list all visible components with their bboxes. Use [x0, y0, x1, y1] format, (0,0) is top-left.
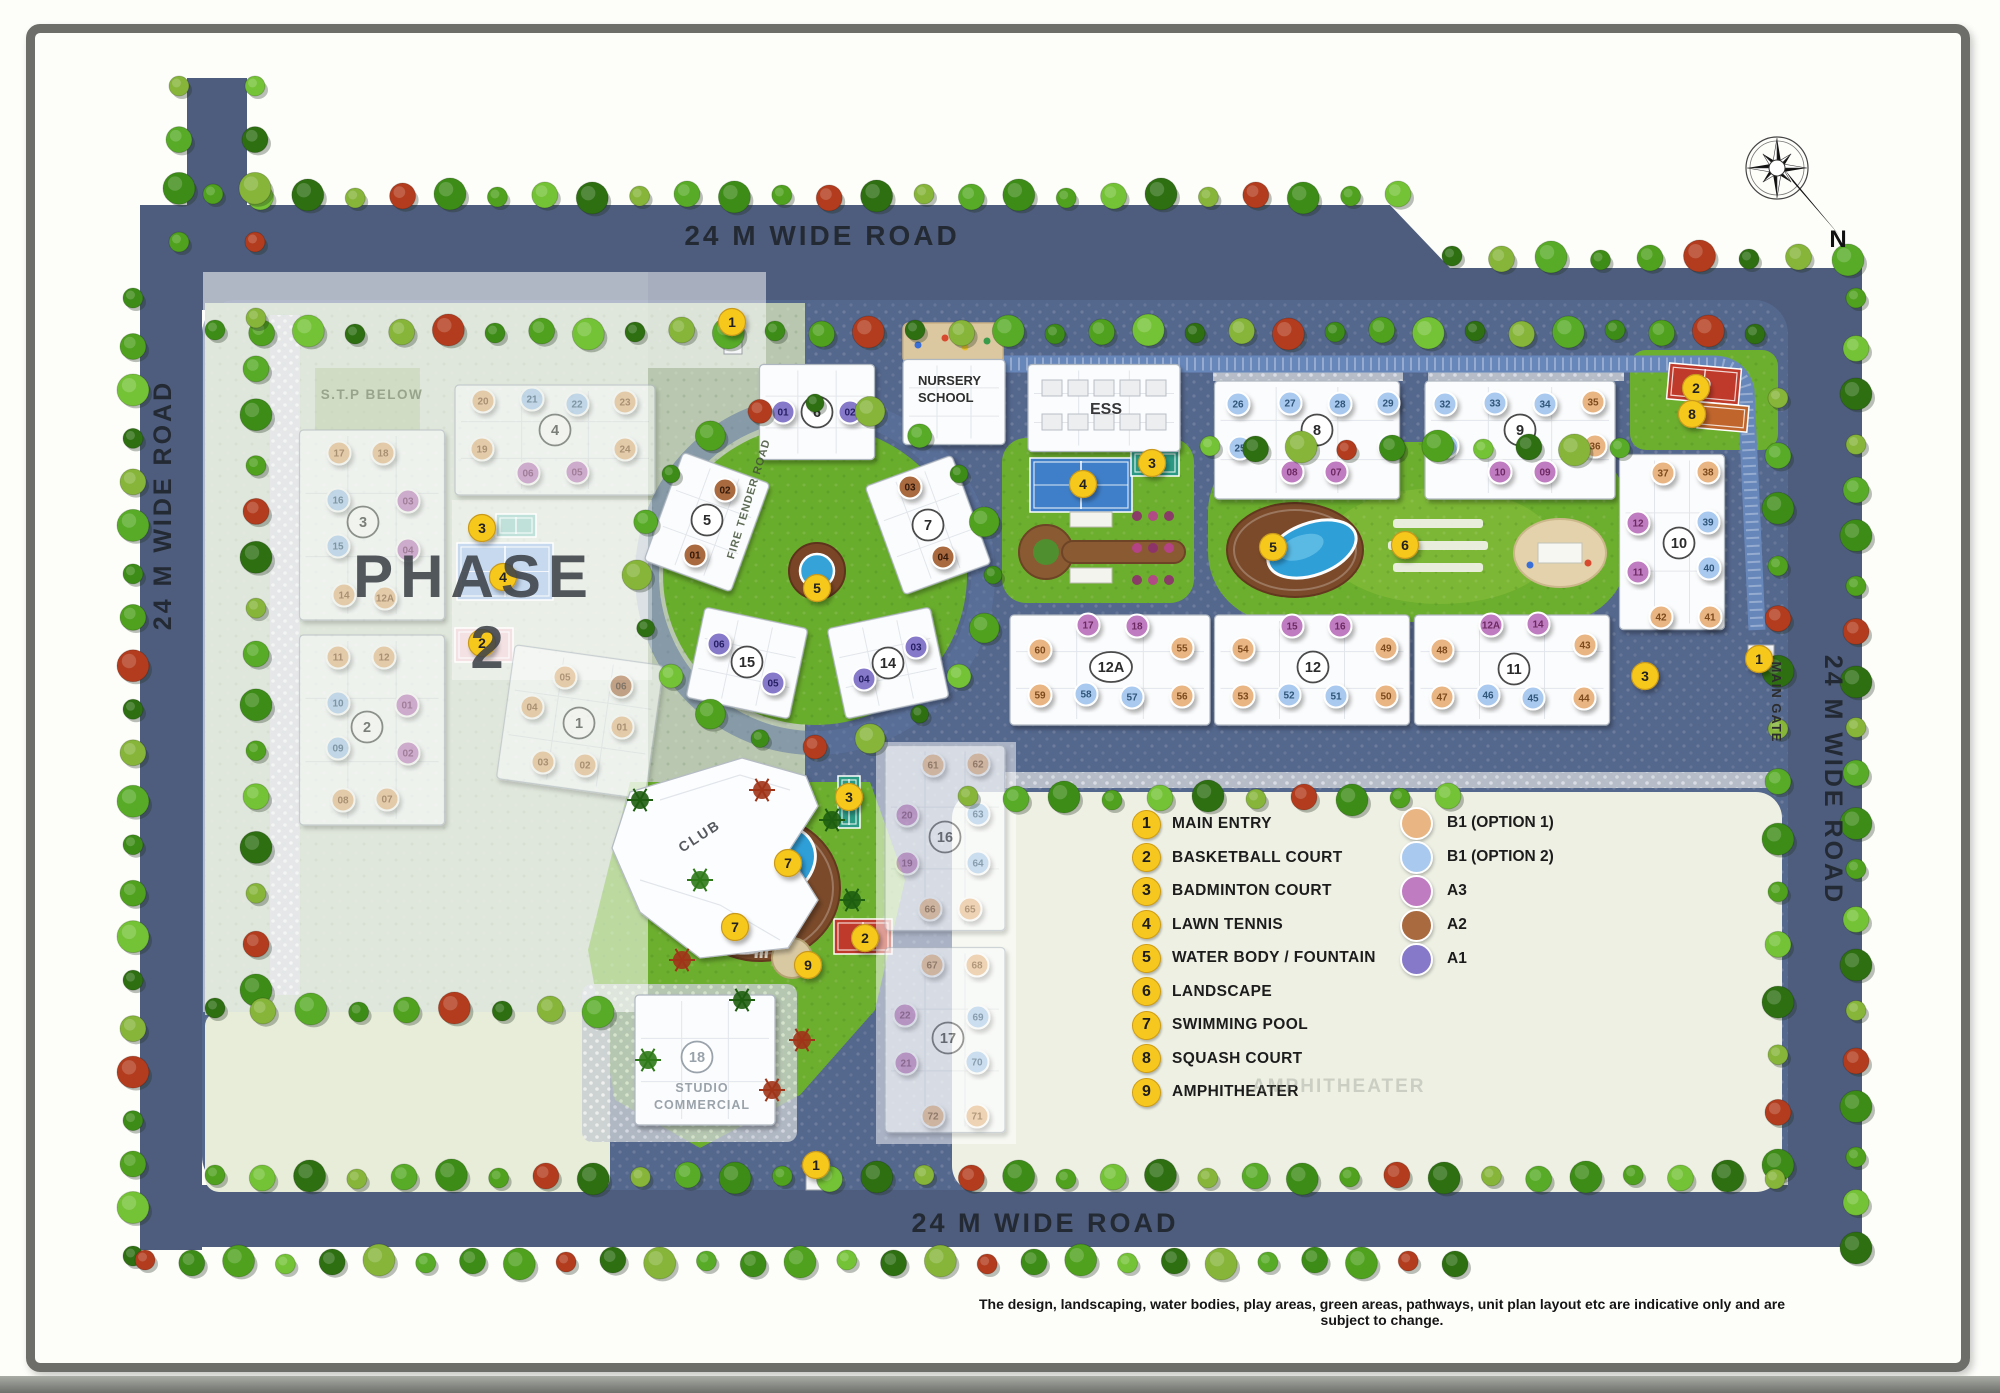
text: 21 [900, 1059, 912, 1070]
circle [1439, 786, 1451, 798]
circle [820, 188, 832, 200]
text: 26 [1232, 400, 1244, 411]
unit-04: 04 [853, 668, 876, 691]
text: 7 [784, 855, 792, 871]
rect [1068, 414, 1088, 430]
circle [206, 187, 215, 196]
building-number-17: 17 [933, 1023, 964, 1054]
circle [245, 693, 259, 707]
unit-02: 02 [574, 754, 597, 777]
circle [1007, 789, 1019, 801]
tree-icon [223, 1245, 258, 1279]
map-marker-3: 3 [469, 515, 496, 542]
circle [1389, 184, 1401, 196]
circle [1401, 1254, 1410, 1263]
rect [1120, 380, 1140, 396]
unit-07: 07 [376, 788, 399, 811]
nursery-school-label-line2: SCHOOL [918, 390, 974, 405]
unit-06: 06 [517, 462, 540, 485]
circle [172, 235, 181, 244]
circle [1767, 827, 1781, 841]
tree-icon [644, 1247, 679, 1281]
circle [124, 743, 136, 755]
circle [587, 1000, 601, 1014]
text: 1 [575, 716, 583, 732]
legend-item-1: 1MAIN ENTRY [1132, 810, 1272, 838]
unit-65: 65 [959, 898, 982, 921]
circle [1626, 1168, 1635, 1177]
circle [245, 403, 259, 417]
unit-15: 15 [327, 535, 350, 558]
circle [679, 1165, 691, 1177]
text: 16 [332, 496, 344, 507]
tree-icon [914, 184, 937, 207]
tree-icon [135, 1250, 158, 1273]
text: 33 [1489, 399, 1501, 410]
tree-icon [1065, 1244, 1100, 1278]
legend-number-badge: 7 [1132, 1011, 1161, 1040]
text: 50 [1380, 692, 1392, 703]
circle [1137, 318, 1151, 332]
circle [665, 467, 673, 475]
circle [122, 1060, 136, 1074]
tree-icon [784, 1246, 819, 1280]
text: 7 [924, 518, 932, 534]
circle [663, 667, 674, 678]
text: 11 [1506, 662, 1521, 678]
text: 1 [1755, 651, 1763, 667]
circle [1849, 720, 1858, 729]
circle [249, 743, 258, 752]
circle [1148, 543, 1158, 553]
building-number-4: 4 [540, 415, 571, 446]
unit-72: 72 [922, 1105, 945, 1128]
circle [1849, 291, 1858, 300]
circle [1468, 324, 1477, 333]
unit-29: 29 [1377, 392, 1400, 415]
circle [1383, 438, 1395, 450]
circle [604, 1250, 616, 1262]
text: 43 [1579, 641, 1591, 652]
circle [1290, 435, 1304, 449]
unit-58: 58 [1075, 683, 1098, 706]
tree-icon [1205, 1248, 1240, 1282]
circle [913, 707, 921, 715]
circle [1717, 1164, 1731, 1178]
circle [122, 513, 136, 527]
circle [352, 1005, 361, 1014]
circle [1557, 320, 1571, 334]
circle [488, 326, 497, 335]
circle [1148, 575, 1158, 585]
text: 15 [332, 542, 344, 553]
circle [1150, 182, 1164, 196]
circle [1845, 524, 1859, 538]
phase2-title-line2: 2 [470, 614, 503, 681]
unit-21: 21 [521, 388, 544, 411]
text: 37 [1657, 469, 1669, 480]
map-marker-5: 5 [804, 575, 831, 602]
unit-11: 11 [1627, 561, 1650, 584]
unit-35: 35 [1582, 391, 1605, 414]
building-number-15: 15 [732, 647, 763, 678]
circle [1767, 496, 1781, 510]
circle [1492, 249, 1504, 261]
unit-03: 03 [899, 476, 922, 499]
legend-watermark: AMPHITHEATER [1252, 1076, 1426, 1098]
text: 05 [559, 673, 571, 684]
text: 17 [333, 449, 345, 460]
text: 3 [1148, 455, 1156, 471]
text: 47 [1436, 693, 1448, 704]
text: 64 [972, 859, 984, 870]
circle [1767, 1153, 1781, 1167]
circle [1070, 1248, 1084, 1262]
circle [1594, 253, 1603, 262]
circle [124, 1154, 136, 1166]
text: 11 [333, 653, 344, 664]
circle [124, 337, 136, 349]
circle [394, 186, 406, 198]
text: 5 [703, 513, 711, 529]
legend-unit-type-b1-option-1-: B1 (OPTION 1) [1400, 809, 1554, 837]
unit-55: 55 [1171, 637, 1194, 660]
unit-type-label: A1 [1447, 950, 1467, 968]
tree-icon [245, 76, 268, 99]
rect [1393, 563, 1483, 572]
circle [1845, 1236, 1859, 1250]
unit-54: 54 [1232, 638, 1255, 661]
text: 42 [1655, 613, 1667, 624]
circle [953, 323, 965, 335]
circle [1233, 321, 1245, 333]
circle [633, 189, 642, 198]
circle [724, 1166, 738, 1180]
legend-item-label: BADMINTON COURT [1172, 882, 1332, 900]
circle [1847, 763, 1859, 775]
circle [775, 1169, 784, 1178]
text: 41 [1704, 613, 1716, 624]
circle [639, 621, 647, 629]
circle [1849, 862, 1858, 871]
legend-item-6: 6LANDSCAPE [1132, 978, 1272, 1006]
circle [1393, 791, 1402, 800]
legend-item-label: MAIN ENTRY [1172, 815, 1272, 833]
text: 3 [478, 520, 486, 536]
text: 1 [812, 1157, 820, 1173]
text: 09 [1539, 468, 1551, 479]
unit-12A: 12A [1480, 614, 1503, 637]
unit-type-swatch [1400, 909, 1433, 942]
circle [723, 185, 737, 199]
circle [1849, 1150, 1858, 1159]
tree-icon [416, 1253, 439, 1276]
circle [1151, 788, 1163, 800]
circle [1201, 190, 1210, 199]
circle [1845, 382, 1859, 396]
legend-number-badge: 1 [1132, 810, 1161, 839]
building-number-11: 11 [1499, 654, 1530, 685]
circle [278, 1257, 287, 1266]
circle [1201, 1171, 1210, 1180]
unit-19: 19 [896, 852, 919, 875]
circle [1771, 558, 1780, 567]
text: 61 [927, 761, 939, 772]
circle [244, 176, 258, 190]
circle [984, 338, 991, 345]
circle [537, 1166, 549, 1178]
circle [122, 378, 136, 392]
text: 22 [571, 400, 583, 411]
circle [1007, 1164, 1021, 1178]
circle [1105, 793, 1114, 802]
text: 62 [972, 760, 984, 771]
circle [138, 1253, 147, 1262]
unit-07: 07 [1325, 461, 1348, 484]
text: 7 [731, 919, 739, 935]
map-marker-1: 1 [803, 1152, 830, 1179]
unit-52: 52 [1278, 684, 1301, 707]
circle [247, 359, 259, 371]
text: 02 [844, 408, 856, 419]
circle [122, 789, 136, 803]
unit-38: 38 [1697, 461, 1720, 484]
building-number-5: 5 [692, 505, 723, 536]
circle [678, 184, 690, 196]
text: 03 [904, 483, 916, 494]
unit-42: 42 [1650, 606, 1673, 629]
nursery-school-label-line1: NURSERY [918, 373, 981, 388]
tree-icon [837, 1250, 860, 1273]
text: 01 [401, 701, 413, 712]
legend-item-label: BASKETBALL COURT [1172, 849, 1343, 867]
text: 8 [1688, 406, 1696, 422]
circle [860, 400, 874, 414]
text: 07 [1330, 468, 1342, 479]
text: 63 [972, 810, 984, 821]
legend-item-5: 5WATER BODY / FOUNTAIN [1132, 944, 1376, 972]
text: 15 [739, 655, 755, 671]
text: 23 [619, 398, 631, 409]
phase2-wash [648, 272, 766, 368]
circle [1341, 788, 1355, 802]
circle [1446, 1254, 1458, 1266]
tree-icon [772, 185, 795, 208]
circle [122, 925, 136, 939]
circle [980, 1257, 989, 1266]
unit-type-swatch [1400, 875, 1433, 908]
unit-05: 05 [566, 461, 589, 484]
text: 3 [359, 515, 367, 531]
tree-icon [319, 1249, 348, 1278]
circle [1053, 785, 1067, 799]
tree-icon [977, 1254, 1000, 1277]
circle [700, 703, 714, 717]
text: 71 [971, 1112, 983, 1123]
text: 39 [1702, 518, 1714, 529]
tree-icon [1398, 1251, 1421, 1274]
circle [298, 1164, 312, 1178]
circle [1742, 252, 1751, 261]
circle [1306, 1250, 1318, 1262]
circle [1641, 248, 1653, 260]
unit-66: 66 [919, 898, 942, 921]
circle [323, 1252, 335, 1264]
building-number-10: 10 [1664, 528, 1695, 559]
unit-59: 59 [1029, 684, 1052, 707]
text: 02 [719, 486, 731, 497]
building-number-7: 7 [913, 510, 944, 541]
circle [1059, 191, 1068, 200]
circle [183, 1253, 195, 1265]
circle [124, 883, 136, 895]
circle [122, 654, 136, 668]
text: 07 [381, 795, 393, 806]
text: 53 [1237, 692, 1249, 703]
circle [393, 322, 405, 334]
text: 15 [1286, 622, 1298, 633]
circle [807, 738, 818, 749]
circle [866, 1165, 880, 1179]
circle [126, 1249, 135, 1258]
unit-21: 21 [895, 1052, 918, 1075]
circle [348, 191, 357, 200]
circle [1608, 323, 1617, 332]
building-number-12A: 12A [1090, 652, 1132, 682]
unit-08: 08 [332, 789, 355, 812]
text: 06 [522, 469, 534, 480]
circle [1164, 543, 1174, 553]
circle [962, 1168, 974, 1180]
unit-09: 09 [1534, 461, 1557, 484]
circle [126, 1113, 135, 1122]
circle [1849, 1003, 1858, 1012]
unit-40: 40 [1698, 557, 1721, 580]
circle [559, 1255, 568, 1264]
circle [249, 601, 258, 610]
text: 35 [1587, 398, 1599, 409]
legend-unit-type-a2: A2 [1400, 911, 1467, 939]
text: 65 [964, 905, 976, 916]
text: 11 [1633, 568, 1644, 579]
road-label-bottom: 24 M WIDE ROAD [911, 1208, 1178, 1238]
text: 02 [402, 749, 414, 760]
text: 4 [1079, 476, 1087, 492]
building-12A: 171860555958575612A [1010, 614, 1210, 726]
legend-number-badge: 2 [1132, 843, 1161, 872]
building-number-14: 14 [873, 648, 904, 679]
circle [752, 402, 763, 413]
circle [961, 789, 970, 798]
text: 38 [1702, 468, 1714, 479]
rect [1042, 414, 1062, 430]
text: 09 [332, 744, 344, 755]
circle [443, 996, 457, 1010]
circle [1847, 622, 1859, 634]
circle [1149, 1163, 1163, 1177]
map-marker-6: 6 [1392, 532, 1419, 559]
circle [1277, 322, 1291, 336]
rect [1070, 568, 1112, 583]
circle [744, 1254, 756, 1266]
text: 6 [1401, 537, 1409, 553]
text: 2 [1692, 380, 1700, 396]
text: 5 [813, 580, 821, 596]
map-marker-2: 2 [852, 925, 879, 952]
unit-17: 17 [328, 442, 351, 465]
text: 5 [1269, 539, 1277, 555]
text: 08 [1286, 468, 1298, 479]
legend-item-label: WATER BODY / FOUNTAIN [1172, 949, 1376, 967]
legend-item-7: 7SWIMMING POOL [1132, 1011, 1308, 1039]
tree-icon [179, 1250, 208, 1279]
text: 2 [363, 720, 371, 736]
circle [1105, 186, 1117, 198]
rect [1094, 380, 1114, 396]
map-marker-9: 9 [795, 952, 822, 979]
circle [124, 608, 136, 620]
circle [1203, 439, 1212, 448]
circle [248, 79, 257, 88]
circle [974, 617, 988, 631]
circle [533, 321, 545, 333]
legend-lawn [952, 792, 1782, 1192]
unit-type-swatch [1400, 841, 1433, 874]
circle [1789, 247, 1801, 259]
text: 54 [1237, 645, 1249, 656]
site-plan: 202122231924060541718160315041412A311121… [0, 0, 2000, 1393]
unit-03: 03 [397, 490, 420, 513]
circle [1249, 792, 1258, 801]
amenity-playground_e [1514, 519, 1606, 587]
unit-64: 64 [967, 852, 990, 875]
circle [628, 325, 637, 334]
circle [987, 568, 995, 576]
legend-number-badge: 4 [1132, 910, 1161, 939]
circle [1513, 324, 1525, 336]
circle [350, 1172, 359, 1181]
legend-unit-type-a1: A1 [1400, 945, 1467, 973]
text: 05 [571, 468, 583, 479]
unit-28: 28 [1329, 393, 1352, 416]
text: 49 [1380, 644, 1392, 655]
circle [911, 427, 922, 438]
unit-04: 04 [932, 546, 955, 569]
unit-27: 27 [1279, 392, 1302, 415]
circle [1417, 321, 1431, 335]
circle [1671, 1168, 1683, 1180]
text: 32 [1439, 400, 1451, 411]
legend-number-badge: 5 [1132, 944, 1161, 973]
circle [1527, 562, 1534, 569]
circle [245, 978, 259, 992]
circle [1771, 391, 1780, 400]
text: 58 [1080, 690, 1092, 701]
circle [208, 1001, 217, 1010]
unit-type-label: A3 [1447, 882, 1467, 900]
map-marker-1: 1 [1746, 646, 1773, 673]
circle [1048, 327, 1057, 336]
building-1: 0506040103021 [496, 645, 663, 800]
unit-02: 02 [397, 742, 420, 765]
text: 8 [1313, 423, 1321, 439]
text: 01 [689, 551, 701, 562]
tree-icon [1161, 1248, 1190, 1277]
unit-45: 45 [1522, 687, 1545, 710]
circle [126, 973, 135, 982]
tree-icon [503, 1248, 538, 1282]
text: 56 [1176, 692, 1188, 703]
